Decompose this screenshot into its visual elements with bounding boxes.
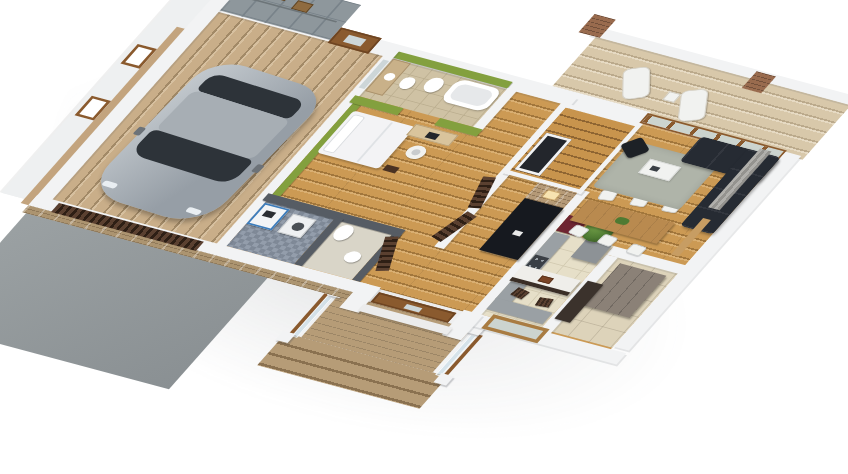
table-centerpiece xyxy=(613,216,631,226)
boiler-panel xyxy=(262,210,277,218)
front-door-glass xyxy=(403,304,422,312)
bathtub-basin xyxy=(447,83,495,108)
coffee-table-books xyxy=(649,166,660,172)
car-headlight-right xyxy=(185,207,203,216)
island-tray xyxy=(537,275,554,284)
fireplace-niche xyxy=(543,190,560,199)
office-chair-seat xyxy=(410,148,423,156)
back-door-window xyxy=(343,35,367,47)
sun-lounger-1 xyxy=(622,66,650,100)
bench-decor xyxy=(512,230,523,236)
laptop xyxy=(424,132,440,140)
floor-plan-render xyxy=(0,0,848,474)
sun-lounger-2 xyxy=(677,89,708,122)
washer-door xyxy=(289,221,306,232)
car-headlight-left xyxy=(101,180,119,189)
vanity-sink xyxy=(382,72,398,82)
bed-duvet-fold xyxy=(356,122,393,162)
